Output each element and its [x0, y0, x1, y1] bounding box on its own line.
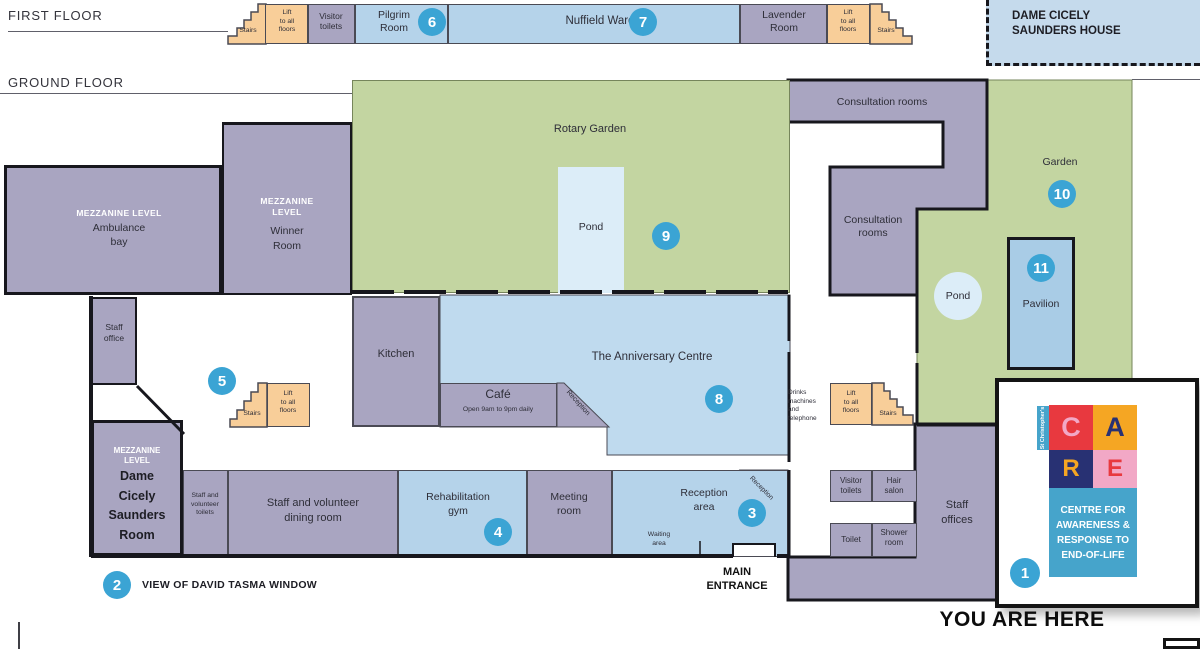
shower-room-label: Shower room [880, 528, 907, 548]
you-are-here-label: YOU ARE HERE [939, 607, 1104, 632]
rehabilitation-gym-label: Rehabilitation gym [426, 490, 490, 518]
care-tagline: CENTRE FOR AWARENESS & RESPONSE TO END-O… [1049, 488, 1137, 577]
pond-circle-label: Pond [946, 290, 971, 303]
stairs-icon [872, 383, 913, 425]
location-9-badge: 9 [652, 222, 680, 250]
hair-salon-label: Hair salon [884, 476, 903, 496]
location-10-badge: 10 [1048, 180, 1076, 208]
waiting-area-label: Waiting area [648, 531, 670, 548]
mezzanine-level-label: MEZZANINE LEVEL [76, 208, 161, 218]
drinks-machines-label: Drinks machines and telephone [788, 389, 817, 423]
location-7-badge: 7 [629, 8, 657, 36]
consultation-rooms-side-label: Consultation rooms [844, 214, 902, 240]
consultation-rooms-block [788, 80, 987, 295]
reception-area-label: Reception area [680, 486, 727, 514]
david-tasma-window-label: VIEW OF DAVID TASMA WINDOW [142, 579, 317, 592]
location-4-badge: 4 [484, 518, 512, 546]
lift-label: Lift to all floors [280, 390, 297, 416]
toilet-label: Toilet [841, 534, 861, 544]
care-letter-e: E [1093, 450, 1137, 488]
lower-floor-edge-line [18, 622, 20, 649]
ground-floor-title: GROUND FLOOR [8, 75, 124, 91]
care-letter-a: A [1093, 405, 1137, 450]
staff-office-label: Staff office [104, 322, 124, 343]
cafe-hours-label: Open 9am to 9pm daily [463, 406, 533, 414]
stairs-label: Stairs [877, 27, 894, 35]
location-1-badge: 1 [1010, 558, 1040, 588]
reception-diagonal-label: Reception [565, 389, 591, 417]
stairs-label: Stairs [239, 27, 256, 35]
consultation-rooms-label: Consultation rooms [837, 96, 927, 109]
ground-floor-underline-right [1132, 79, 1200, 80]
kitchen-label: Kitchen [378, 348, 415, 361]
anniversary-centre-area [440, 295, 790, 455]
location-6-badge: 6 [418, 8, 446, 36]
visitor-toilets-label: Visitor toilets [319, 11, 342, 31]
bottom-right-partial-box [1163, 638, 1200, 649]
location-8-badge: 8 [705, 385, 733, 413]
kitchen-room [352, 296, 440, 427]
stairs-icon [870, 4, 912, 44]
first-floor-underline [8, 31, 228, 32]
winner-room-label: Winner Room [270, 224, 303, 254]
lift-label: Lift to all floors [840, 9, 857, 35]
rotary-garden-label: Rotary Garden [554, 123, 626, 136]
staff-volunteer-toilets-label: Staff and volunteer toilets [191, 492, 219, 518]
location-2-badge: 2 [103, 571, 131, 599]
care-letter-c: C [1049, 405, 1093, 450]
location-11-badge: 11 [1027, 254, 1055, 282]
st-christophers-label: St Christopher's [1037, 406, 1049, 450]
nuffield-ward-label: Nuffield Ward [565, 15, 634, 29]
pavilion-label: Pavilion [1023, 298, 1060, 311]
hospice-floor-plan: FIRST FLOOR GROUND FLOOR Stairs Lift to … [0, 0, 1200, 649]
pilgrim-room-label: Pilgrim Room [378, 9, 410, 34]
ambulance-bay-label: Ambulance bay [93, 221, 146, 249]
mezzanine-level-label: MEZZANINE LEVEL [114, 446, 161, 466]
stairs-label: Stairs [879, 410, 896, 418]
stairs-icon [230, 383, 267, 427]
staff-offices-label: Staff offices [941, 498, 973, 527]
stairs-icon [228, 4, 266, 44]
ground-floor-underline [0, 93, 352, 94]
mezzanine-level-label: MEZZANINE LEVEL [260, 196, 313, 218]
dame-cicely-saunders-room-label: Dame Cicely Saunders Room [109, 467, 166, 545]
location-3-badge: 3 [738, 499, 766, 527]
location-5-badge: 5 [208, 367, 236, 395]
main-entrance-label: MAIN ENTRANCE [706, 566, 767, 593]
lift-label: Lift to all floors [279, 9, 296, 35]
dame-cicely-saunders-house-label: DAME CICELY SAUNDERS HOUSE [1012, 9, 1121, 39]
stairs-label: Stairs [243, 410, 260, 418]
visitor-toilets-label: Visitor toilets [840, 476, 862, 496]
anniversary-centre-label: The Anniversary Centre [592, 351, 713, 365]
garden-label: Garden [1042, 156, 1077, 169]
dining-room-label: Staff and volunteer dining room [267, 496, 359, 525]
lavender-room-label: Lavender Room [762, 9, 806, 34]
cafe-label: Café [485, 387, 510, 401]
meeting-room-label: Meeting room [550, 490, 587, 518]
staff-offices-block [788, 424, 1012, 600]
lift-label: Lift to all floors [843, 390, 860, 416]
pond-label: Pond [579, 221, 604, 234]
first-floor-title: FIRST FLOOR [8, 8, 103, 24]
care-letter-r: R [1049, 450, 1093, 488]
